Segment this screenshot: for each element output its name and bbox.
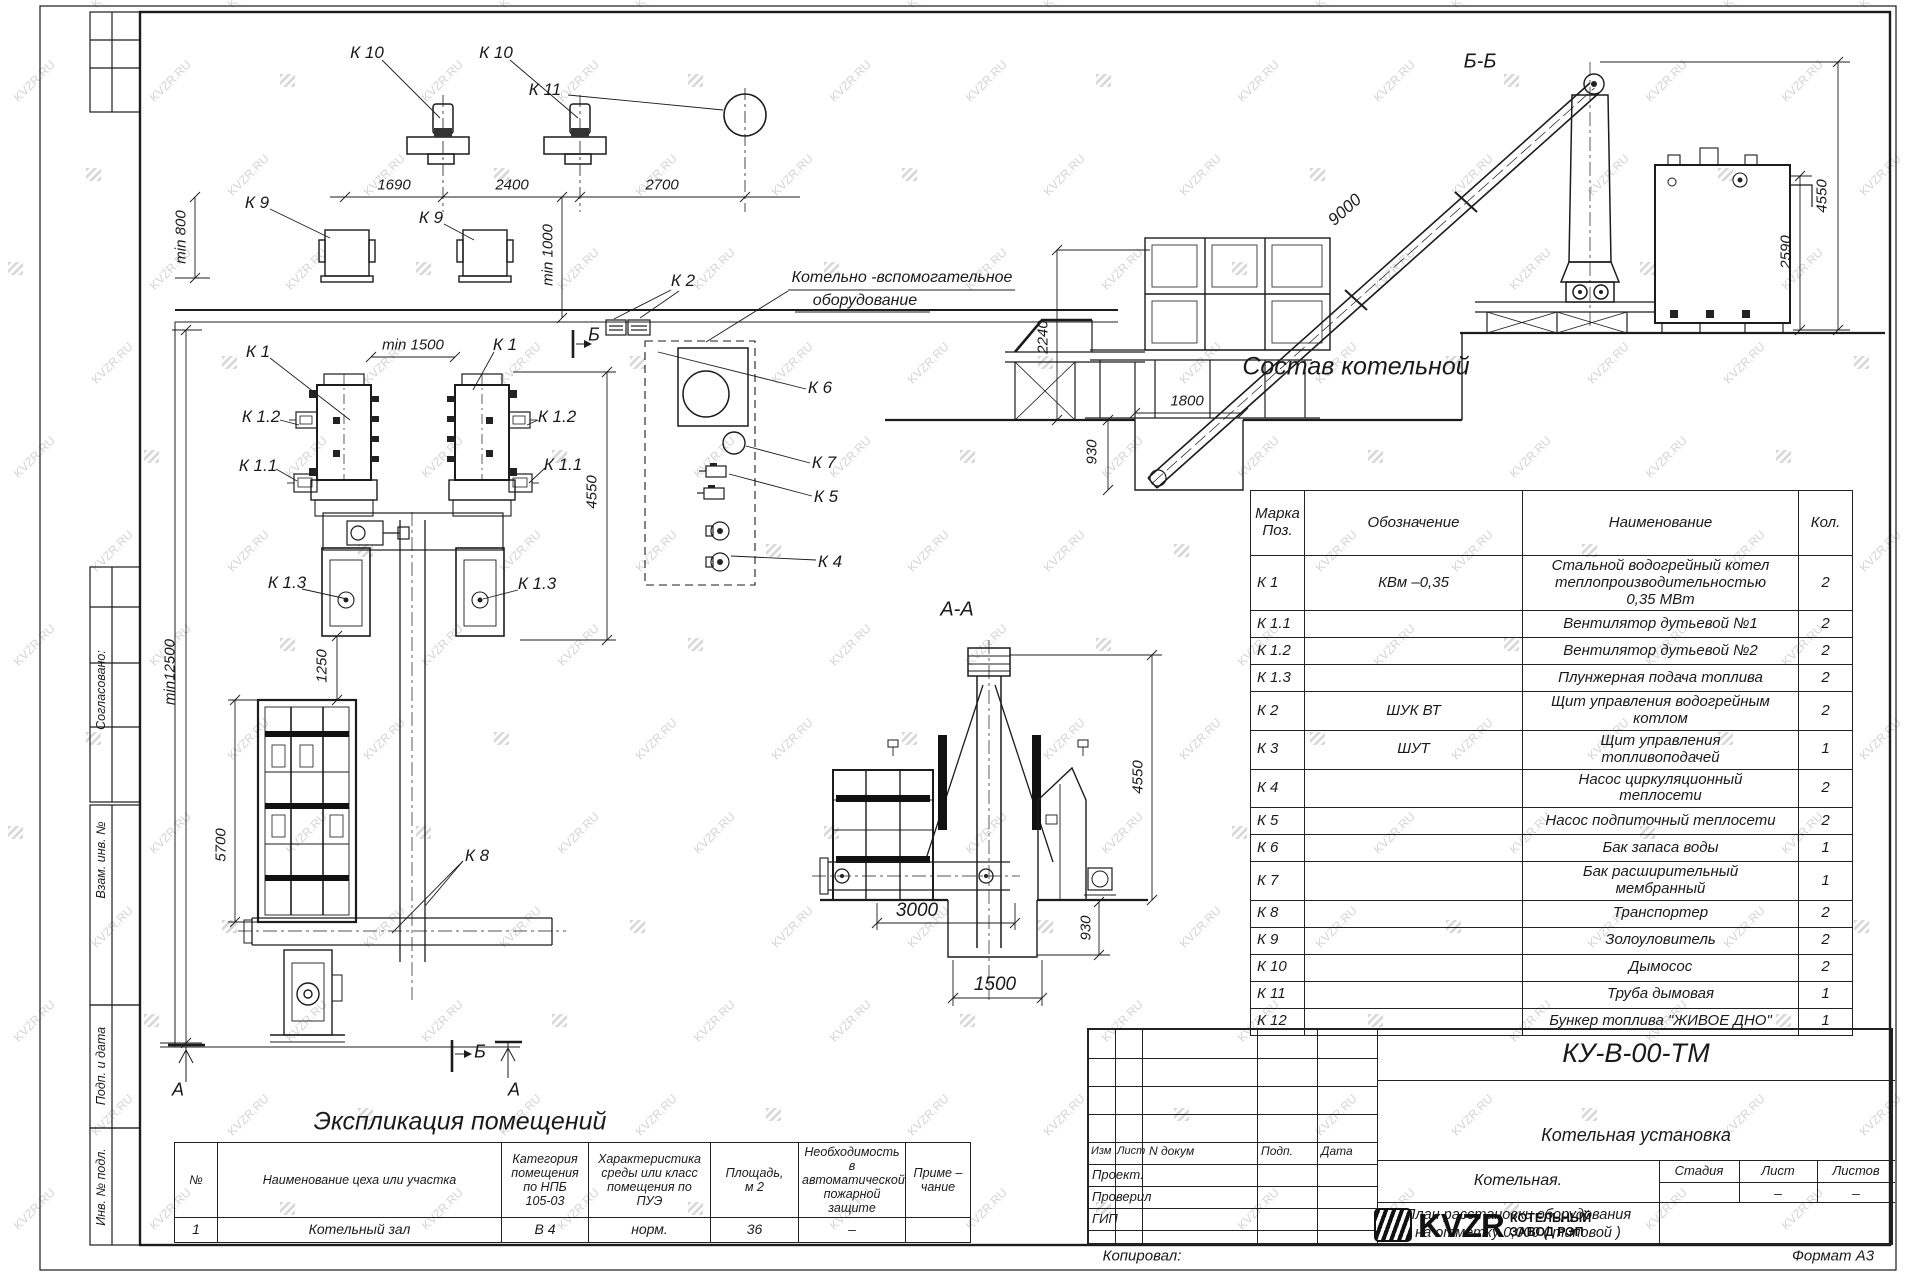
table-cell: Бак расширительный мембранный <box>1523 862 1799 901</box>
table-row: К 8Транспортер2 <box>1251 900 1853 927</box>
table-cell <box>1305 981 1523 1008</box>
table-cell: К 8 <box>1251 900 1305 927</box>
table-cell: ШУК ВТ <box>1305 692 1523 731</box>
callout-k5: К 5 <box>814 487 838 507</box>
table-cell: Насос подпиточный теплосети <box>1523 808 1799 835</box>
table-cell: 2 <box>1799 638 1853 665</box>
callout-k1: К 1 <box>493 335 517 355</box>
callout-k1-3: К 1.3 <box>518 574 556 594</box>
sidebar-vzam: Взам. инв. № <box>94 821 108 898</box>
table-cell: К 1.3 <box>1251 665 1305 692</box>
table-cell: 2 <box>1799 900 1853 927</box>
callout-k7: К 7 <box>812 453 836 473</box>
table-cell: Золоуловитель <box>1523 927 1799 954</box>
table-row: К 11Труба дымовая1 <box>1251 981 1853 1008</box>
aa-conveyor <box>812 858 1020 894</box>
dim-1500: 1500 <box>974 974 1016 996</box>
table-cell: К 6 <box>1251 835 1305 862</box>
dim-min12500: min12500 <box>162 639 179 705</box>
company-logo-block: KVZR КОТЕЛЬНЫЙ ЗАВОД РЭП <box>1374 1205 1604 1245</box>
marker-letter-a: А <box>508 1080 520 1101</box>
table-cell: Щит управления водогрейным котлом <box>1523 692 1799 731</box>
table-cell: 2 <box>1799 769 1853 808</box>
column-header: № <box>175 1143 218 1218</box>
dim-min1000: min 1000 <box>540 224 557 286</box>
table-cell <box>1305 638 1523 665</box>
table-cell <box>1305 862 1523 901</box>
dim-930-aa: 930 <box>1078 915 1095 940</box>
drawing-sheet: KVZR.RUKVZR.RUKVZR.RUKVZR.RUKVZR.RUKVZR.… <box>0 0 1920 1280</box>
bunker-drive <box>270 950 345 1042</box>
tb-role-proekt: Проект. <box>1092 1167 1144 1182</box>
table-cell <box>1305 769 1523 808</box>
k9-symbol <box>319 230 513 282</box>
dim-2590: 2590 <box>1778 235 1795 268</box>
table-cell: Стальной водогрейный котел теплопроизвод… <box>1523 556 1799 611</box>
plan-dimensions <box>160 192 800 1048</box>
column-header: Наименование <box>1523 491 1799 556</box>
dim-4550-aa: 4550 <box>1130 760 1147 793</box>
table-cell <box>1305 665 1523 692</box>
format-label: Формат А3 <box>1792 1248 1874 1265</box>
table-cell: Бак запаса воды <box>1523 835 1799 862</box>
table-cell <box>1305 808 1523 835</box>
dim-930-bb: 930 <box>1084 439 1101 464</box>
k5-symbol <box>697 463 726 499</box>
callout-k10: К 10 <box>479 43 513 63</box>
dim-4550-bb: 4550 <box>1814 179 1831 212</box>
dim-5700: 5700 <box>213 828 230 861</box>
table-cell: Плунжерная подача топлива <box>1523 665 1799 692</box>
table-cell: Котельный зал <box>218 1218 502 1243</box>
marker-letter-a: А <box>172 1080 184 1101</box>
table-row: К 10Дымосос2 <box>1251 954 1853 981</box>
explication-table: №Наименование цеха или участкаКатегория … <box>174 1142 971 1243</box>
boiler-k1-left <box>287 374 379 636</box>
column-header: Необходимость в автоматической пожарной … <box>799 1143 906 1218</box>
k4-symbol <box>706 522 729 571</box>
table-cell: 1 <box>175 1218 218 1243</box>
table-cell: К 11 <box>1251 981 1305 1008</box>
table-cell: Транспортер <box>1523 900 1799 927</box>
aux-equipment-box <box>645 341 755 585</box>
callout-k1-1: К 1.1 <box>544 455 582 475</box>
explication-title: Экспликация помещений <box>314 1108 607 1137</box>
table-cell: ШУТ <box>1305 730 1523 769</box>
aa-hood <box>888 685 1088 862</box>
table-cell: 2 <box>1799 611 1853 638</box>
callout-k1-1: К 1.1 <box>239 456 277 476</box>
tb-col-izm: Изм <box>1091 1145 1111 1157</box>
callout-k1: К 1 <box>246 342 270 362</box>
sidebar-agreed: Согласовано: <box>94 650 108 730</box>
leader-lines <box>270 60 816 933</box>
table-cell: К 5 <box>1251 808 1305 835</box>
company-name: КОТЕЛЬНЫЙ ЗАВОД РЭП <box>1510 1211 1591 1240</box>
composition-table: Марка Поз.ОбозначениеНаименованиеКол.К 1… <box>1250 490 1853 1036</box>
table-cell: К 10 <box>1251 954 1305 981</box>
table-cell <box>1305 835 1523 862</box>
composition-title: Состав котельной <box>1242 353 1469 382</box>
section-bb-title: Б-Б <box>1464 51 1497 74</box>
table-row: К 1.1Вентилятор дутьевой №12 <box>1251 611 1853 638</box>
table-row: 1Котельный залВ 4норм.36– <box>175 1218 971 1243</box>
table-row: К 1КВм –0,35Стальной водогрейный котел т… <box>1251 556 1853 611</box>
table-row: К 4Насос циркуляционный теплосети2 <box>1251 769 1853 808</box>
table-cell: 1 <box>1799 835 1853 862</box>
table-row: К 7Бак расширительный мембранный1 <box>1251 862 1853 901</box>
callout-k10: К 10 <box>350 43 384 63</box>
table-cell: К 2 <box>1251 692 1305 731</box>
aa-chimney <box>968 640 1010 1000</box>
table-cell: 2 <box>1799 556 1853 611</box>
table-cell: 2 <box>1799 692 1853 731</box>
conveyor-channel <box>400 512 425 1000</box>
table-cell <box>1305 611 1523 638</box>
fuel-bunker <box>258 700 356 922</box>
table-cell: В 4 <box>502 1218 589 1243</box>
table-cell: К 9 <box>1251 927 1305 954</box>
dim-min800: min 800 <box>173 210 190 263</box>
section-bb-view <box>885 57 1885 495</box>
section-aa-view <box>812 640 1162 1006</box>
column-header: Категория помещения по НПБ 105-03 <box>502 1143 589 1218</box>
section-marker-b-bottom <box>452 1040 472 1072</box>
table-cell: Щит управления топливоподачей <box>1523 730 1799 769</box>
column-header: Площадь, м 2 <box>711 1143 799 1218</box>
table-row: К 1.2Вентилятор дутьевой №22 <box>1251 638 1853 665</box>
table-cell <box>1305 954 1523 981</box>
section-marker-a-left <box>168 1045 205 1082</box>
table-row: К 5Насос подпиточный теплосети2 <box>1251 808 1853 835</box>
table-cell: КВм –0,35 <box>1305 556 1523 611</box>
dim-2240: 2240 <box>1035 320 1052 353</box>
callout-k9: К 9 <box>245 193 269 213</box>
table-cell: Насос циркуляционный теплосети <box>1523 769 1799 808</box>
table-cell <box>1305 927 1523 954</box>
tb-role-gip: ГИП <box>1092 1211 1118 1226</box>
table-cell: К 1.1 <box>1251 611 1305 638</box>
table-row: К 9Золоуловитель2 <box>1251 927 1853 954</box>
tb-role-proveril: Проверил <box>1092 1189 1151 1204</box>
table-cell <box>906 1218 971 1243</box>
table-cell: Вентилятор дутьевой №2 <box>1523 638 1799 665</box>
column-header: Приме – чание <box>906 1143 971 1218</box>
column-header: Кол. <box>1799 491 1853 556</box>
dim-2400: 2400 <box>495 177 528 194</box>
table-cell: Вентилятор дутьевой №1 <box>1523 611 1799 638</box>
table-cell: К 1.2 <box>1251 638 1305 665</box>
object-name: Котельная. <box>1377 1172 1659 1190</box>
kvzr-logo-text: KVZR <box>1418 1209 1504 1242</box>
title-block: Изм Лист N докум Подп. Дата Проект. Пров… <box>1087 1028 1893 1245</box>
table-cell: 2 <box>1799 665 1853 692</box>
inclined-conveyor <box>1148 74 1604 488</box>
marker-letter-b: Б <box>588 325 600 346</box>
dim-3000: 3000 <box>896 900 938 922</box>
dim-4550-plan: 4550 <box>584 475 601 508</box>
column-header: Наименование цеха или участка <box>218 1143 502 1218</box>
table-cell: 1 <box>1799 730 1853 769</box>
section-aa-title: А-А <box>940 599 973 622</box>
stage-header: Листов <box>1817 1163 1895 1178</box>
tb-col-podp: Подп. <box>1261 1144 1293 1158</box>
table-cell: Дымосос <box>1523 954 1799 981</box>
table-cell: норм. <box>589 1218 711 1243</box>
sheets-value: – <box>1817 1185 1895 1201</box>
doc-number: КУ-В-00-ТМ <box>1377 1038 1895 1069</box>
bb-dimensions <box>1052 57 1850 495</box>
table-cell: 1 <box>1799 862 1853 901</box>
dim-1690: 1690 <box>377 177 410 194</box>
tb-col-ndok: N докум <box>1149 1144 1194 1158</box>
dim-2700: 2700 <box>645 177 678 194</box>
k7-symbol <box>723 432 745 454</box>
table-cell: К 1 <box>1251 556 1305 611</box>
callout-k1-2: К 1.2 <box>538 407 576 427</box>
sidebar-podp: Подп. и дата <box>94 1027 108 1105</box>
aux-equipment-label: Котельно -вспомогательное <box>792 269 1013 287</box>
table-cell: 2 <box>1799 954 1853 981</box>
column-header: Обозначение <box>1305 491 1523 556</box>
stage-header: Лист <box>1739 1163 1817 1178</box>
aa-dimensions <box>872 650 1162 1006</box>
sidebar-inv: Инв. № подл. <box>94 1148 108 1226</box>
dim-1250: 1250 <box>314 649 331 682</box>
table-cell: 2 <box>1799 927 1853 954</box>
column-header: Марка Поз. <box>1251 491 1305 556</box>
feeder-assembly <box>323 513 503 550</box>
table-cell: К 3 <box>1251 730 1305 769</box>
plan-view <box>160 60 1118 1082</box>
dim-1800: 1800 <box>1170 393 1203 410</box>
column-header: Характеристика среды или класс помещения… <box>589 1143 711 1218</box>
callout-k9: К 9 <box>419 208 443 228</box>
tb-col-data: Дата <box>1321 1144 1353 1158</box>
project-name: Котельная установка <box>1377 1125 1895 1146</box>
stage-header: Стадия <box>1659 1163 1739 1178</box>
kvzr-logo-icon <box>1374 1208 1412 1242</box>
aa-right-equipment <box>1038 768 1116 900</box>
table-cell: 2 <box>1799 808 1853 835</box>
marker-letter-b: Б <box>474 1042 486 1063</box>
callout-k6: К 6 <box>808 378 832 398</box>
table-cell: К 4 <box>1251 769 1305 808</box>
table-row: К 1.3Плунжерная подача топлива2 <box>1251 665 1853 692</box>
table-cell: – <box>799 1218 906 1243</box>
callout-k2: К 2 <box>671 271 695 291</box>
table-cell: К 7 <box>1251 862 1305 901</box>
sheet-value: – <box>1739 1185 1817 1201</box>
kopiroval-label: Копировал: <box>1103 1248 1182 1265</box>
callout-k11: К 11 <box>529 80 561 100</box>
callout-k4: К 4 <box>818 552 842 572</box>
table-cell <box>1305 900 1523 927</box>
table-row: К 2ШУК ВТЩит управления водогрейным котл… <box>1251 692 1853 731</box>
table-row: К 3ШУТЩит управления топливоподачей1 <box>1251 730 1853 769</box>
table-cell: 36 <box>711 1218 799 1243</box>
tb-col-list: Лист <box>1117 1145 1145 1157</box>
k10-symbol <box>407 104 606 164</box>
callout-k8: К 8 <box>465 846 489 866</box>
callout-k1-2: К 1.2 <box>242 407 280 427</box>
table-row: К 6Бак запаса воды1 <box>1251 835 1853 862</box>
table-cell: 1 <box>1799 981 1853 1008</box>
table-cell: Труба дымовая <box>1523 981 1799 1008</box>
dim-min1500: min 1500 <box>382 337 444 354</box>
aux-equipment-label: оборудование <box>813 292 917 310</box>
callout-k1-3: К 1.3 <box>268 573 306 593</box>
